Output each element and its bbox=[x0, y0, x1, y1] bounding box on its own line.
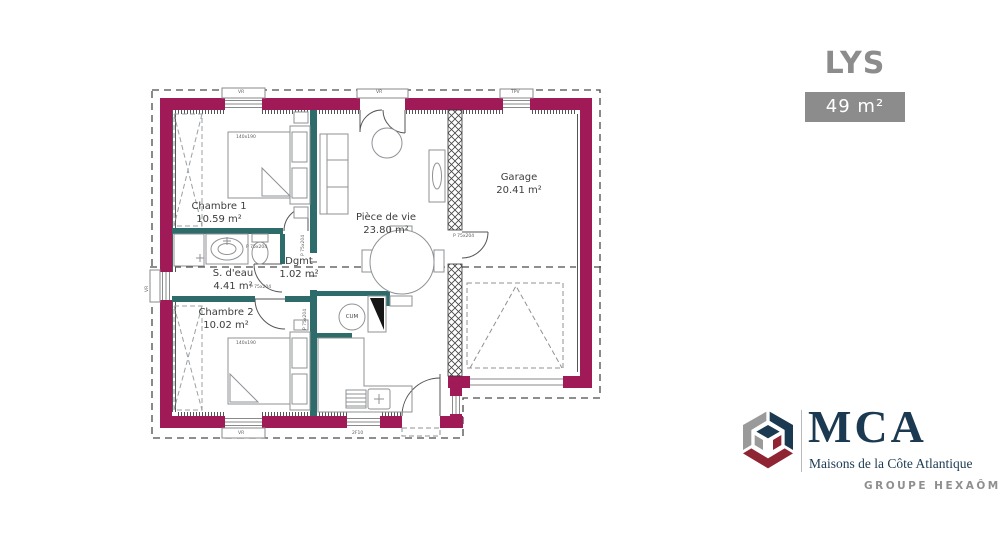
brand-block: MCA Maisons de la Côte Atlantique GROUPE… bbox=[738, 402, 978, 502]
room-label-piece-de-vie: Pièce de vie 23.80 m² bbox=[356, 212, 416, 237]
room-area: 10.02 m² bbox=[198, 320, 253, 333]
room-name: Garage bbox=[496, 172, 542, 185]
garage-partition-wall bbox=[448, 110, 462, 376]
door-code-dgmt: P 75x204 bbox=[302, 235, 307, 256]
room-name: Pièce de vie bbox=[356, 212, 416, 225]
plan-area-badge: 49 m² bbox=[805, 92, 905, 122]
shutter-code-bay: VR bbox=[376, 91, 382, 96]
room-area: 23.80 m² bbox=[356, 225, 416, 238]
floor-plan-page: Chambre 1 10.59 m² S. d'eau 4.41 m² Cham… bbox=[0, 0, 1000, 554]
room-label-garage: Garage 20.41 m² bbox=[496, 172, 542, 197]
garage-door bbox=[467, 283, 563, 388]
mca-cube-logo-icon bbox=[738, 406, 798, 474]
door-code-chambre2: P 75x204 bbox=[250, 286, 271, 291]
room-label-chambre-1: Chambre 1 10.59 m² bbox=[191, 201, 246, 226]
shutter-code-window-1: VR bbox=[238, 91, 244, 96]
room-area: 1.02 m² bbox=[279, 269, 318, 282]
room-label-s-deau: S. d'eau 4.41 m² bbox=[213, 268, 253, 293]
bed-size-chambre-2: 140x190 bbox=[236, 342, 256, 347]
door-code-garage: P 75x204 bbox=[453, 235, 474, 240]
kitchen-window-code: 2F10 bbox=[352, 432, 363, 437]
room-label-dgmt: Dgmt 1.02 m² bbox=[279, 256, 318, 281]
garage-window-code: TPV bbox=[511, 91, 520, 96]
side-window-code: VR bbox=[146, 286, 151, 292]
bed-size-chambre-1: 140x190 bbox=[236, 136, 256, 141]
room-name: Dgmt bbox=[279, 256, 318, 269]
brand-divider bbox=[801, 410, 802, 472]
room-area: 4.41 m² bbox=[213, 281, 253, 294]
plan-name: LYS bbox=[805, 46, 905, 81]
room-area: 20.41 m² bbox=[496, 185, 542, 198]
shutter-code-window-2: VR bbox=[238, 432, 244, 437]
brand-monogram: MCA bbox=[808, 400, 927, 453]
room-label-chambre-2: Chambre 2 10.02 m² bbox=[198, 307, 253, 332]
brand-group-name: GROUPE HEXAÔM bbox=[864, 480, 1000, 492]
door-code-sdeau: P 75x204 bbox=[246, 246, 267, 251]
room-name: Chambre 1 bbox=[191, 201, 246, 214]
door-code-chambre2-v: P 75x204 bbox=[304, 309, 309, 330]
room-area: 10.59 m² bbox=[191, 214, 246, 227]
room-name: S. d'eau bbox=[213, 268, 253, 281]
water-heater-label: CUM bbox=[346, 314, 359, 320]
kitchen-counter bbox=[318, 338, 412, 412]
room-name: Chambre 2 bbox=[198, 307, 253, 320]
brand-subtitle: Maisons de la Côte Atlantique bbox=[809, 456, 972, 472]
